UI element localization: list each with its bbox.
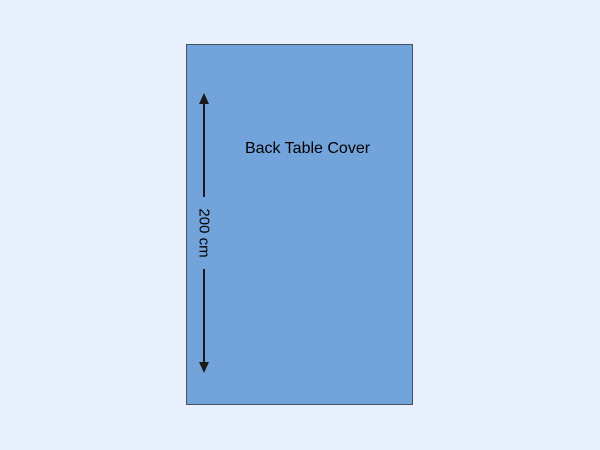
back-table-cover-rect: Back Table Cover 200 cm [186,44,413,405]
arrow-line-lower [203,269,205,362]
arrow-line-upper [203,104,205,197]
diagram-canvas: Back Table Cover 200 cm [0,0,600,450]
dimension-label: 200 cm [196,208,213,257]
dimension-label-box: 200 cm [196,197,212,269]
arrow-down-icon [199,362,209,373]
arrow-up-icon [199,93,209,104]
dimension-arrow: 200 cm [196,93,212,373]
cover-title-label: Back Table Cover [203,140,412,158]
